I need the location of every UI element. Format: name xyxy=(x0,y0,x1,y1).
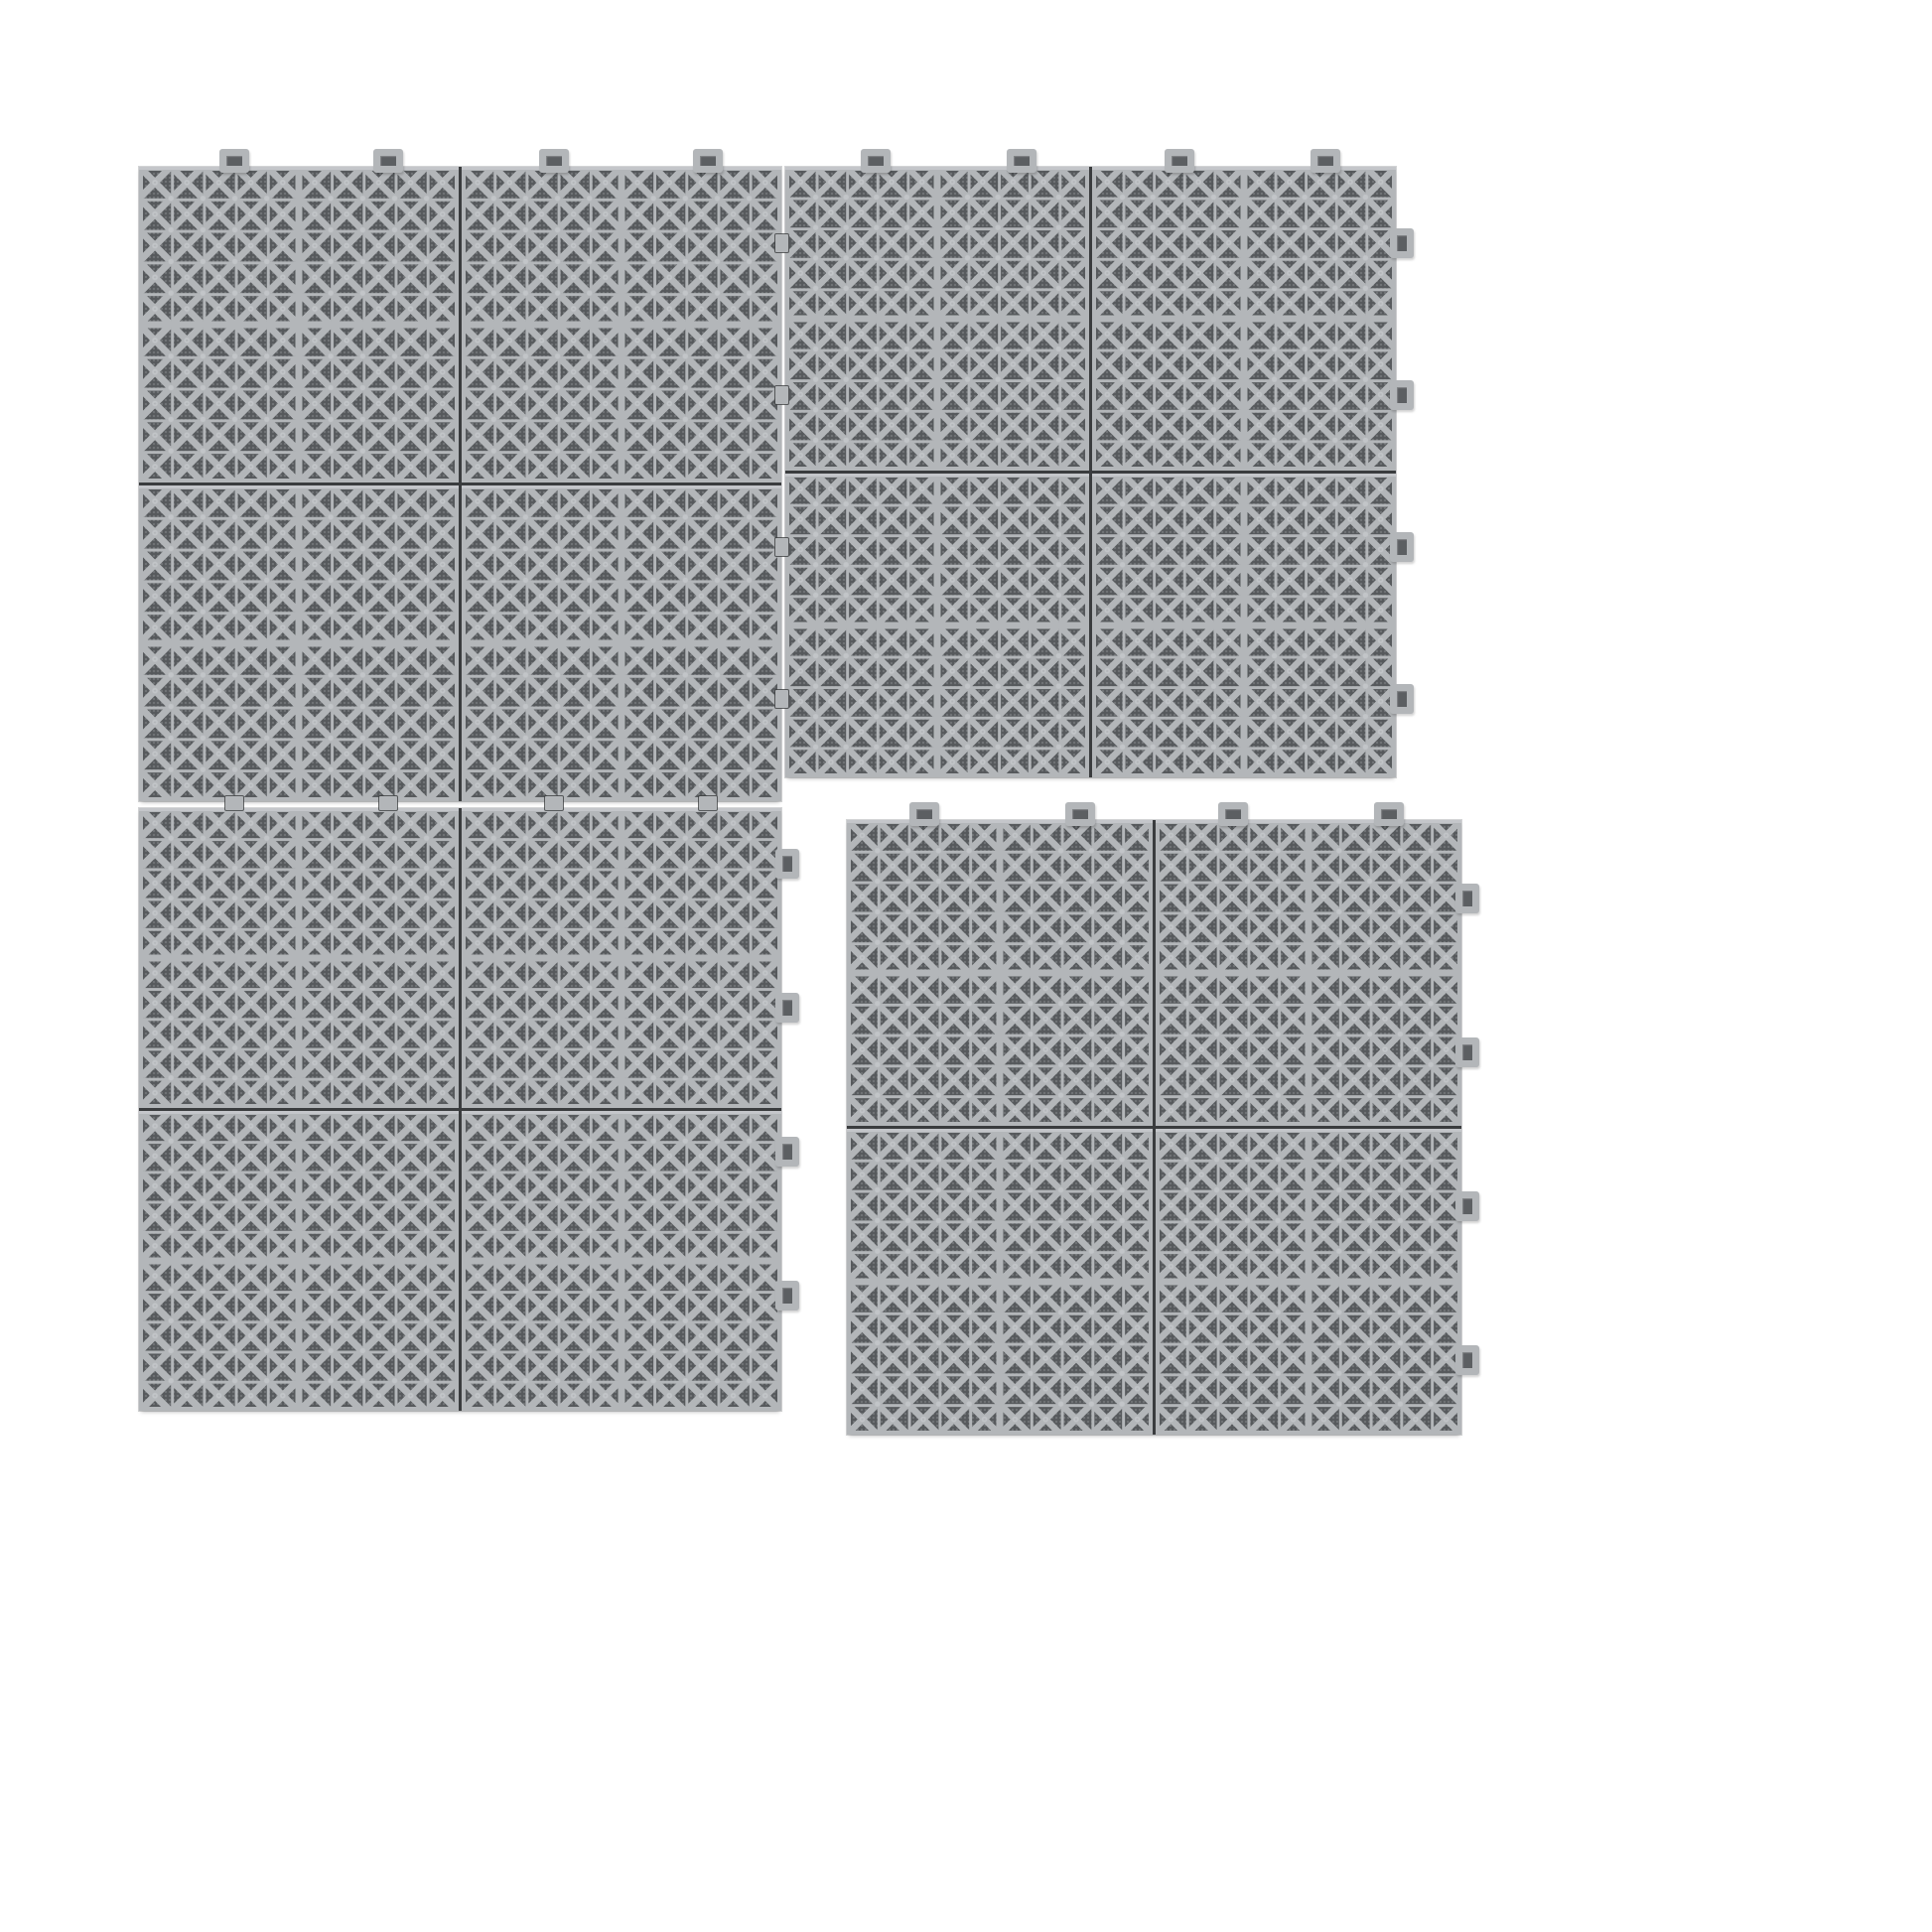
interlock-bridge xyxy=(775,386,788,404)
right-connector-tab xyxy=(1390,684,1414,714)
floor-tile xyxy=(462,1111,781,1411)
floor-tile xyxy=(1156,1129,1461,1435)
top-connector-tab xyxy=(1218,802,1248,826)
top-connector-tab xyxy=(539,149,569,173)
floor-tile xyxy=(1156,820,1461,1126)
top-connector-tab xyxy=(909,802,939,826)
interlock-bridge xyxy=(545,796,563,810)
top-connector-tab xyxy=(1165,149,1194,173)
floor-tile xyxy=(139,1111,459,1411)
floor-tile xyxy=(847,1129,1153,1435)
floor-tile xyxy=(462,167,781,483)
interlock-bridge xyxy=(225,796,243,810)
floor-tile xyxy=(139,485,459,801)
right-connector-tab xyxy=(775,993,799,1023)
interlock-bridge xyxy=(775,538,788,556)
tile-group-top-left xyxy=(139,167,781,801)
tile-group-bottom-left xyxy=(139,808,781,1411)
tile-group-bottom-right xyxy=(847,820,1461,1435)
right-connector-tab xyxy=(1455,884,1479,913)
interlock-bridge xyxy=(699,796,717,810)
top-connector-tab xyxy=(1065,802,1095,826)
top-connector-tab xyxy=(1311,149,1340,173)
top-connector-tab xyxy=(693,149,723,173)
floor-tile xyxy=(847,820,1153,1126)
right-connector-tab xyxy=(775,1137,799,1167)
tile-group-top-right xyxy=(785,167,1396,777)
right-connector-tab xyxy=(1455,1345,1479,1375)
floor-tile xyxy=(139,167,459,483)
top-connector-tab xyxy=(219,149,249,173)
right-connector-tab xyxy=(775,849,799,879)
product-photo-canvas xyxy=(0,0,1932,1932)
right-connector-tab xyxy=(1455,1191,1479,1221)
right-connector-tab xyxy=(1390,228,1414,258)
right-connector-tab xyxy=(775,1281,799,1311)
interlock-bridge xyxy=(775,234,788,252)
top-connector-tab xyxy=(1374,802,1404,826)
interlock-bridge xyxy=(379,796,397,810)
floor-tile xyxy=(785,167,1089,471)
right-connector-tab xyxy=(1390,532,1414,562)
floor-tile xyxy=(1092,474,1396,777)
floor-tile xyxy=(1092,167,1396,471)
right-connector-tab xyxy=(1455,1037,1479,1067)
right-connector-tab xyxy=(1390,380,1414,410)
floor-tile xyxy=(462,808,781,1108)
floor-tile xyxy=(139,808,459,1108)
interlock-bridge xyxy=(775,690,788,708)
top-connector-tab xyxy=(373,149,403,173)
floor-tile xyxy=(785,474,1089,777)
floor-tile xyxy=(462,485,781,801)
top-connector-tab xyxy=(861,149,891,173)
top-connector-tab xyxy=(1007,149,1036,173)
